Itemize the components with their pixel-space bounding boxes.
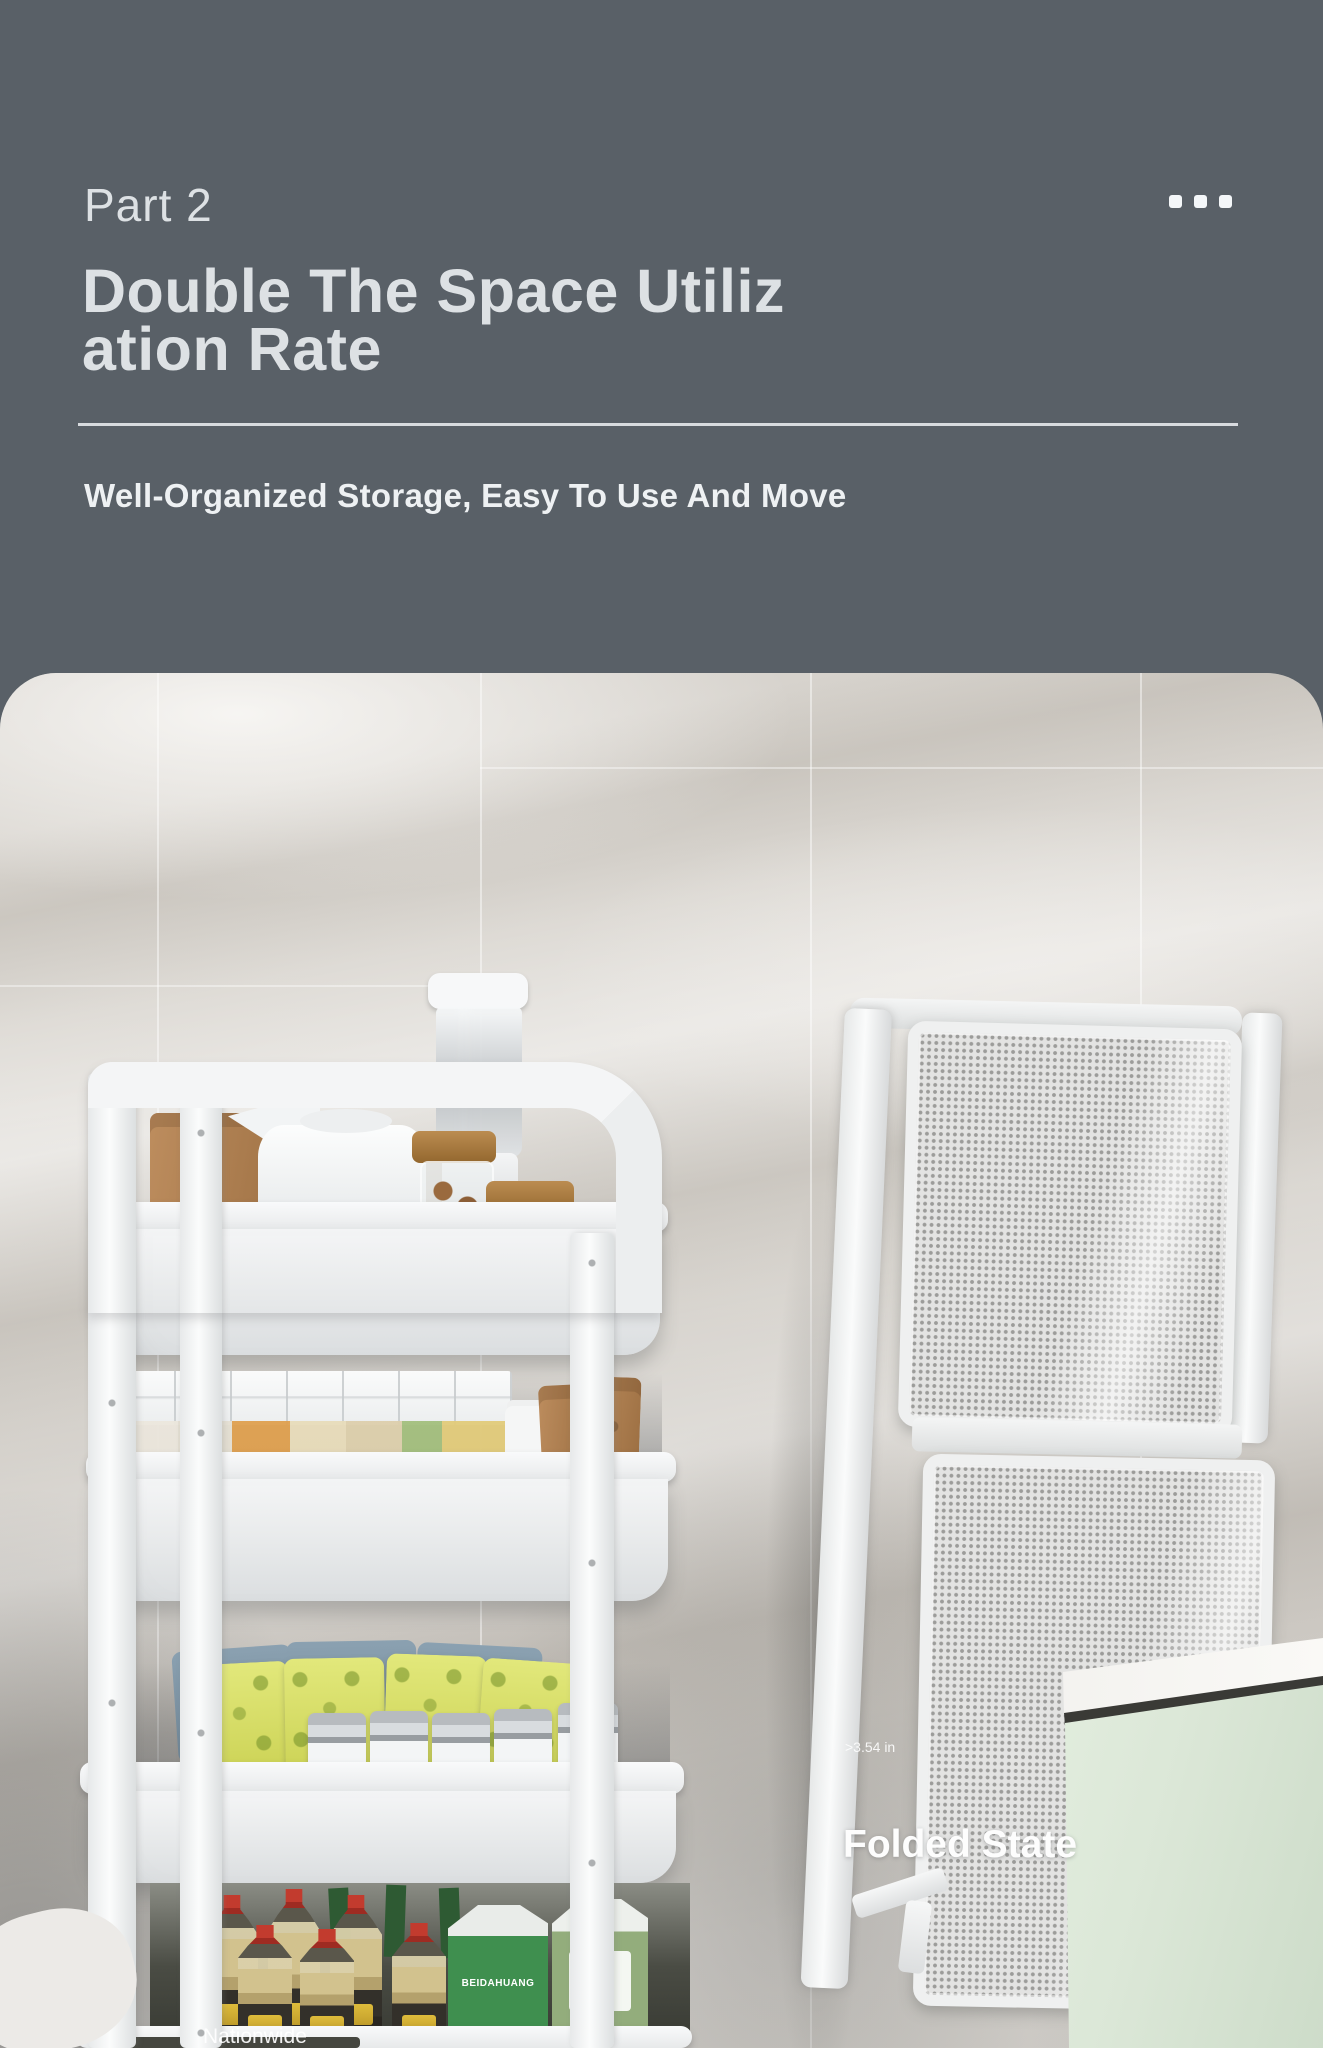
ellipsis-icon xyxy=(1169,195,1232,208)
ellipsis-dot xyxy=(1169,195,1182,208)
cart-post-right xyxy=(570,1233,614,2048)
cart-handle xyxy=(88,1062,662,1313)
page-title: Double The Space Utiliz ation Rate xyxy=(82,262,785,378)
carton-brand-label: BEIDAHUANG xyxy=(448,1978,548,1989)
folded-state-label: Folded State xyxy=(843,1823,1077,1867)
storage-cart: BEIDAHUANG xyxy=(0,673,1323,2048)
part-label: Part 2 xyxy=(84,178,213,232)
dimension-label: >3.54 in xyxy=(845,1739,895,1755)
ellipsis-dot xyxy=(1194,195,1207,208)
bottom-partial-text: Nationwide xyxy=(203,2025,307,2048)
milk-carton: BEIDAHUANG xyxy=(448,1905,548,2035)
container-lids xyxy=(118,1371,512,1425)
hero-header: Part 2 Double The Space Utiliz ation Rat… xyxy=(0,0,1323,673)
product-banner: Part 2 Double The Space Utiliz ation Rat… xyxy=(0,0,1323,2048)
product-photo: BEIDAHUANG >3.54 in Folded State Nationw… xyxy=(0,673,1323,2048)
title-line-1: Double The Space Utiliz xyxy=(82,262,785,320)
title-line-2: ation Rate xyxy=(82,320,785,378)
subtitle: Well-Organized Storage, Easy To Use And … xyxy=(84,477,847,515)
blender-lid xyxy=(428,973,528,1009)
divider-line xyxy=(78,423,1238,426)
ellipsis-dot xyxy=(1219,195,1232,208)
